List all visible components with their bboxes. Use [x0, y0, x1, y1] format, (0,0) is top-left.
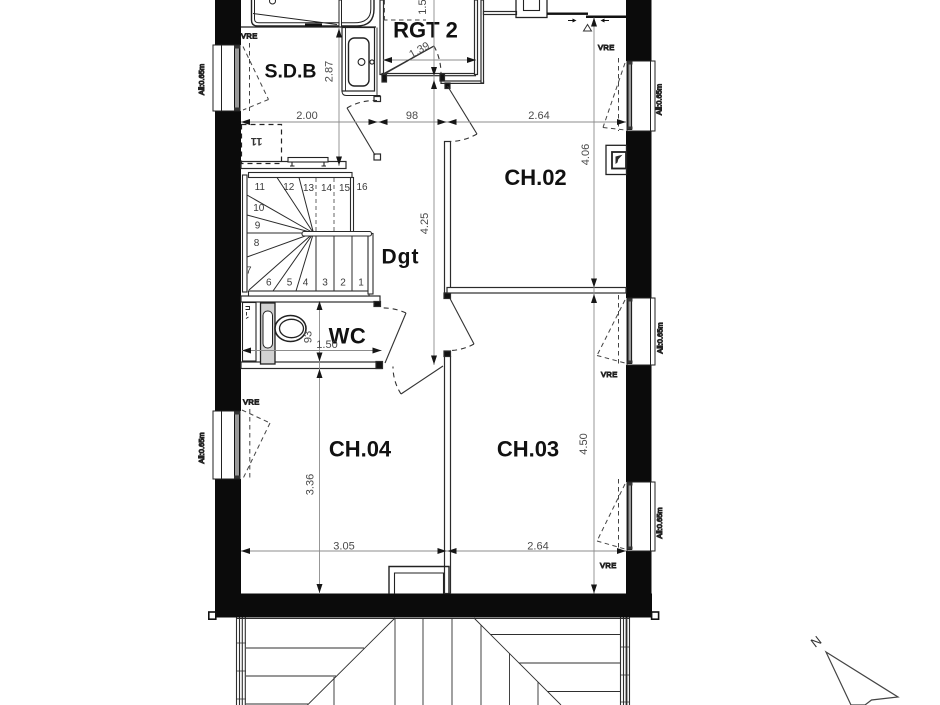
svg-text:3.05: 3.05: [333, 541, 354, 553]
svg-text:11: 11: [255, 182, 266, 193]
svg-text:12: 12: [283, 182, 295, 193]
svg-text:VRE: VRE: [243, 398, 260, 407]
svg-text:4.50: 4.50: [578, 433, 590, 454]
svg-text:10: 10: [253, 203, 265, 214]
svg-text:6: 6: [266, 278, 272, 289]
svg-text:8: 8: [254, 238, 260, 249]
svg-text:3: 3: [322, 278, 328, 289]
svg-text:2.00: 2.00: [296, 110, 317, 122]
svg-text:93: 93: [303, 331, 315, 343]
svg-text:All:0.65m: All:0.65m: [197, 64, 206, 95]
svg-text:4: 4: [303, 278, 309, 289]
svg-text:13: 13: [303, 183, 315, 194]
svg-text:2.64: 2.64: [527, 541, 548, 553]
svg-text:7: 7: [246, 266, 252, 277]
svg-text:14: 14: [321, 183, 333, 194]
svg-text:S.D.B: S.D.B: [264, 61, 316, 83]
svg-text:All:0.65m: All:0.65m: [197, 432, 206, 463]
svg-text:2.64: 2.64: [528, 110, 549, 122]
svg-text:11: 11: [251, 135, 263, 147]
svg-text:Dgt: Dgt: [382, 246, 420, 269]
svg-text:All:0.65m: All:0.65m: [655, 84, 664, 115]
svg-text:4.25: 4.25: [419, 213, 431, 234]
svg-text:2: 2: [340, 278, 346, 289]
svg-text:VRE: VRE: [600, 561, 617, 570]
svg-text:All:0.65m: All:0.65m: [655, 507, 664, 538]
svg-text:CH.02: CH.02: [504, 165, 566, 190]
svg-text:4.06: 4.06: [580, 144, 592, 165]
svg-text:RGT 2: RGT 2: [393, 18, 458, 43]
svg-text:98: 98: [406, 110, 418, 122]
svg-text:2.87: 2.87: [324, 61, 336, 82]
svg-text:VRE: VRE: [601, 370, 618, 379]
svg-text:1: 1: [358, 278, 364, 289]
svg-text:1.50: 1.50: [417, 0, 429, 15]
svg-text:CH.04: CH.04: [329, 437, 392, 462]
svg-text:All:0.65m: All:0.65m: [656, 322, 665, 353]
svg-text:VRE: VRE: [241, 32, 258, 41]
svg-text:3.36: 3.36: [305, 474, 317, 495]
svg-text:15: 15: [339, 183, 351, 194]
svg-text:16: 16: [356, 182, 368, 193]
svg-text:VRE: VRE: [598, 43, 615, 52]
svg-text:1.50: 1.50: [316, 339, 337, 351]
svg-text:5: 5: [287, 278, 293, 289]
svg-text:9: 9: [255, 221, 261, 232]
svg-text:CH.03: CH.03: [497, 437, 559, 462]
